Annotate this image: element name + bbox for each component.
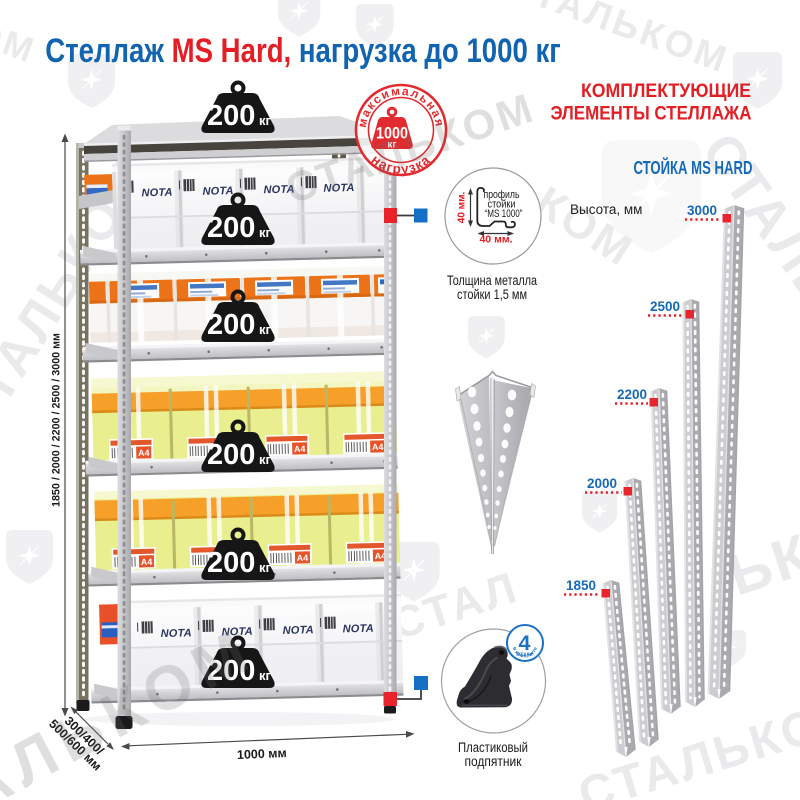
svg-text:“MS 1000”: “MS 1000”: [485, 208, 523, 220]
svg-text:кг: кг: [259, 322, 272, 337]
svg-text:2200: 2200: [617, 387, 647, 402]
svg-text:стойки 1,5 мм: стойки 1,5 мм: [457, 287, 527, 302]
svg-text:Стеллаж MS Hard, нагрузка до 1: Стеллаж MS Hard, нагрузка до 1000 кг: [45, 31, 561, 70]
svg-text:NOTA: NOTA: [282, 624, 313, 637]
svg-text:А4: А4: [138, 448, 150, 458]
svg-text:Пластиковый: Пластиковый: [458, 740, 528, 755]
svg-text:NOTA: NOTA: [141, 187, 172, 200]
svg-text:кг: кг: [259, 560, 272, 575]
svg-text:40 мм.: 40 мм.: [457, 192, 468, 224]
svg-text:кг: кг: [259, 452, 272, 467]
svg-text:КОМПЛЕКТУЮЩИЕ: КОМПЛЕКТУЮЩИЕ: [581, 80, 751, 102]
svg-text:NOTA: NOTA: [342, 623, 373, 636]
svg-text:Высота, мм: Высота, мм: [570, 202, 642, 217]
svg-text:А4: А4: [294, 444, 306, 454]
svg-text:подпятник: подпятник: [465, 754, 522, 769]
svg-text:200: 200: [207, 309, 255, 341]
svg-text:СТОЙКА MS HARD: СТОЙКА MS HARD: [634, 157, 753, 178]
svg-text:3000: 3000: [687, 203, 717, 218]
svg-text:200: 200: [207, 100, 255, 132]
svg-text:А4: А4: [297, 553, 309, 563]
svg-text:2000: 2000: [587, 476, 617, 491]
svg-text:1850: 1850: [566, 578, 596, 593]
svg-text:NOTA: NOTA: [202, 185, 233, 198]
svg-text:Толщина металла: Толщина металла: [447, 273, 537, 288]
svg-text:1850 / 2000 / 2200 / 2500 / 30: 1850 / 2000 / 2200 / 2500 / 3000 мм: [51, 333, 63, 507]
svg-text:40 мм.: 40 мм.: [479, 234, 512, 246]
svg-text:2500: 2500: [650, 299, 680, 314]
svg-text:А4: А4: [141, 557, 153, 567]
svg-text:200: 200: [207, 547, 255, 579]
svg-text:NOTA: NOTA: [161, 627, 192, 640]
svg-text:кг: кг: [259, 113, 272, 128]
svg-text:кг: кг: [259, 225, 272, 240]
svg-text:ЭЛЕМЕНТЫ СТЕЛЛАЖА: ЭЛЕМЕНТЫ СТЕЛЛАЖА: [551, 103, 752, 125]
svg-text:200: 200: [207, 439, 255, 471]
svg-text:1000 мм: 1000 мм: [237, 746, 287, 762]
svg-text:А4: А4: [372, 442, 384, 452]
svg-text:200: 200: [207, 212, 255, 244]
